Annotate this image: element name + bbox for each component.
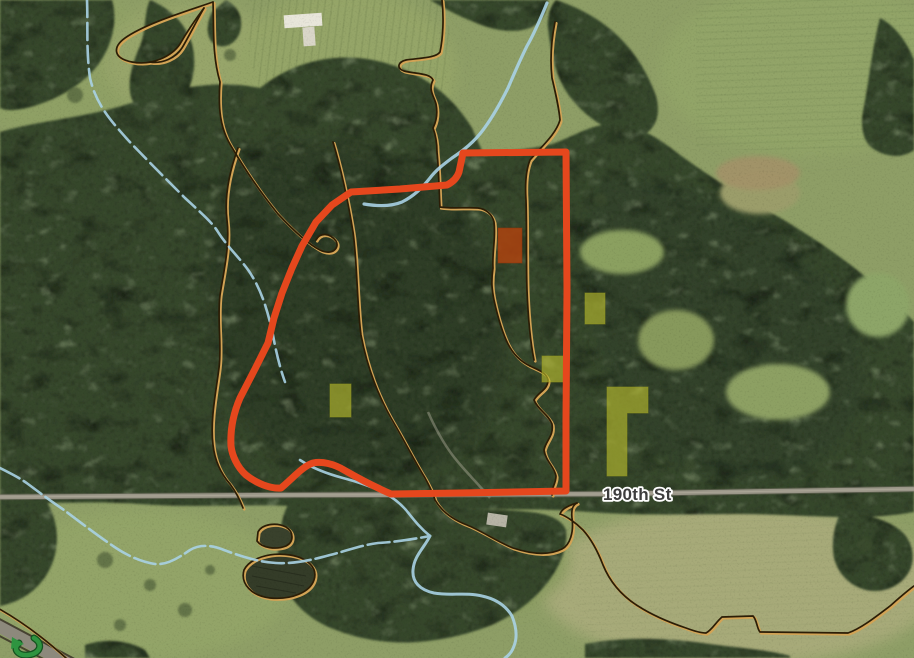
map-canvas[interactable]: 190th St (0, 0, 914, 658)
highlighted-parcel[interactable] (585, 293, 605, 324)
flagged-parcel[interactable] (498, 228, 522, 263)
road-label-190th-st: 190th St (603, 485, 672, 504)
map-viewport[interactable]: 190th St (0, 0, 914, 658)
highlighted-parcel[interactable] (330, 384, 351, 417)
highlighted-parcel[interactable] (542, 356, 563, 382)
